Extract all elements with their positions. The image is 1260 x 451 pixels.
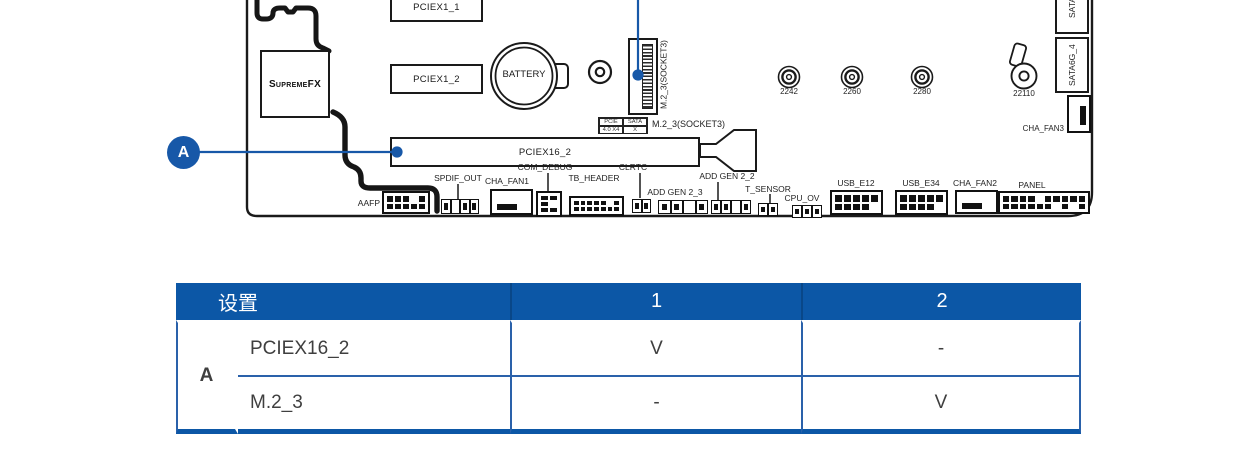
pin (601, 201, 606, 205)
pin (909, 195, 916, 202)
pin (1020, 204, 1026, 210)
com-debug-header (536, 191, 562, 217)
pin (871, 195, 878, 202)
tb-header-label: TB_HEADER (563, 173, 625, 183)
pin (927, 195, 934, 202)
pin (403, 204, 409, 210)
pin (594, 201, 599, 205)
pin-grid (574, 201, 619, 211)
pin (844, 204, 851, 211)
row-pciex16-2-col1: V (510, 320, 801, 375)
pin-grid (835, 195, 878, 210)
pin (1045, 204, 1051, 210)
m2-mode-sata: SATA (623, 118, 647, 126)
pin (581, 201, 586, 205)
pin (1053, 204, 1059, 210)
cha-fan1-label: CHA_FAN1 (478, 176, 536, 186)
standoff-2260 (842, 67, 863, 88)
slot-pciex16-2-label: PCIEX16_2 (519, 147, 571, 158)
pin-grid (387, 196, 425, 209)
pin (1037, 204, 1043, 210)
cpu-ov-header (792, 205, 822, 218)
pin-grid (441, 199, 479, 214)
pin (387, 196, 393, 202)
pin (1072, 108, 1080, 113)
cha-fan2-label: CHA_FAN2 (944, 178, 1006, 188)
pin (1062, 204, 1068, 210)
settings-table: 设置 1 2 A PCIEX16_2 V - M.2_3 - V (176, 283, 1081, 434)
pin (711, 200, 721, 214)
sata-port-sata6g-4-label: SATA6G_4 (1067, 39, 1077, 91)
aafp-label: AAFP (346, 198, 380, 208)
standoff-2242-label: 2242 (767, 87, 811, 96)
cha-fan3-latch (1080, 106, 1086, 125)
slot-pciex1-1-label: PCIEX1_1 (413, 2, 460, 13)
panel-header (998, 191, 1090, 214)
battery-label: BATTERY (489, 69, 559, 80)
callout-a-badge: A (167, 136, 200, 169)
pin (581, 207, 586, 211)
add-gen-2-3-header (658, 200, 708, 214)
pin (632, 199, 642, 213)
com-debug-label: COM_DEBUG (510, 162, 580, 172)
clrtc-header (632, 199, 651, 213)
cha-fan1-latch (497, 204, 517, 210)
column-1-header: 1 (510, 283, 801, 320)
pin (1079, 196, 1085, 202)
pin (768, 203, 778, 216)
pin (608, 201, 613, 205)
pin-grid (658, 200, 708, 214)
pin (601, 207, 606, 211)
clrtc-label: CLRTC (614, 162, 652, 172)
pin (936, 195, 943, 202)
row-m2-3-col2: V (801, 375, 1081, 434)
column-2-header: 2 (801, 283, 1081, 320)
settings-header-cell: 设置 (176, 283, 510, 320)
pin (1011, 204, 1017, 210)
pin-grid (792, 205, 822, 218)
pin (1072, 101, 1080, 106)
standoff-2280-label: 2280 (900, 87, 944, 96)
pin (900, 204, 907, 211)
pin (574, 207, 579, 211)
pin (1079, 204, 1085, 210)
pin-grid (1072, 101, 1080, 127)
pin (1037, 196, 1043, 202)
m2-mode-pcie-value: 4.0 X4 (599, 126, 623, 134)
pin (451, 199, 461, 214)
standoff-2260-label: 2260 (830, 87, 874, 96)
aafp-header (382, 191, 430, 214)
pin-grid (632, 199, 651, 213)
pin (671, 200, 684, 214)
pin (513, 195, 518, 203)
pin (614, 201, 619, 205)
pin (550, 196, 557, 200)
pin (541, 196, 548, 200)
pin (520, 195, 525, 203)
pin (574, 201, 579, 205)
row-m2-3-name: M.2_3 (238, 375, 510, 434)
group-a-cell: A (176, 320, 238, 434)
pin (419, 204, 425, 210)
pin (498, 195, 503, 203)
pin (970, 196, 975, 204)
pin (918, 204, 925, 211)
pin-grid (498, 195, 525, 203)
pin (1053, 196, 1059, 202)
pin (835, 195, 842, 202)
pin (587, 207, 592, 211)
settings-table-header-row: 设置 1 2 (176, 283, 1081, 320)
m2-socket-vertical-label: M.2_3(SOCKET3) (656, 32, 671, 118)
pin-grid (541, 196, 557, 212)
standoff-22110 (1009, 43, 1036, 89)
m2-mode-sata-value: X (623, 126, 647, 134)
pin (395, 204, 401, 210)
pin (721, 200, 731, 214)
pin (1070, 204, 1076, 210)
cha-fan2-header (955, 190, 998, 214)
m2-mode-table: PCIE SATA 4.0 X4 X (598, 117, 648, 134)
pin (978, 196, 983, 204)
pin (871, 204, 878, 211)
usb-e12-header (830, 190, 883, 215)
pin (918, 195, 925, 202)
pcie-slot-latch (700, 130, 756, 171)
pin (1045, 196, 1051, 202)
pin (1003, 204, 1009, 210)
cpu-ov-label: CPU_OV (781, 193, 823, 203)
pin (683, 200, 696, 214)
pin (594, 207, 599, 211)
pin (862, 195, 869, 202)
add-gen-2-3-label: ADD GEN 2_3 (641, 187, 709, 197)
pin (550, 202, 557, 206)
pin (1028, 196, 1034, 202)
pin (1072, 115, 1080, 120)
pin (1028, 204, 1034, 210)
pin (741, 200, 751, 214)
pin (853, 204, 860, 211)
supremefx-chip: SupremeFX (260, 50, 330, 118)
audio-shield-line-top (257, 0, 329, 51)
pin (862, 204, 869, 211)
pin (541, 208, 548, 212)
pin (395, 196, 401, 202)
pin (470, 199, 480, 214)
cha-fan3-label: CHA_FAN3 (1000, 124, 1064, 133)
supremefx-logo: SupremeFX (269, 79, 321, 90)
pin (909, 204, 916, 211)
pin (1070, 196, 1076, 202)
pin (853, 195, 860, 202)
pin (792, 205, 802, 218)
pin (1003, 196, 1009, 202)
pin (411, 204, 417, 210)
panel-label: PANEL (1012, 180, 1052, 190)
sata-port-top-label: SATA6G (1067, 0, 1077, 32)
pin (419, 196, 425, 202)
sata-port-top: SATA6G (1055, 0, 1089, 34)
slot-pciex1-2: PCIEX1_2 (390, 64, 483, 94)
pin (403, 196, 409, 202)
m2-mode-pcie: PCIE (599, 118, 623, 126)
pin-grid (758, 203, 778, 216)
m2-socket-horizontal-label: M.2_3(SOCKET3) (652, 119, 725, 129)
usb-e34-header (895, 190, 948, 215)
pin-grid (1003, 196, 1085, 209)
usb-e12-label: USB_E12 (824, 178, 888, 188)
t-sensor-header (758, 203, 778, 216)
slot-pciex1-2-label: PCIEX1_2 (413, 74, 460, 85)
pin (835, 204, 842, 211)
pin (927, 204, 934, 211)
pin (658, 200, 671, 214)
pin (985, 196, 990, 204)
pin-grid (711, 200, 751, 214)
pin (460, 199, 470, 214)
table-row: M.2_3 - V (176, 375, 1081, 434)
screw-hole-inner (596, 68, 604, 76)
pin (1011, 196, 1017, 202)
pin (505, 195, 510, 203)
spdif-out-header (441, 199, 479, 214)
add-gen-2-2-label: ADD GEN 2_2 (694, 171, 760, 181)
pin (758, 203, 768, 216)
cha-fan1-header (490, 189, 533, 215)
m2-socket (628, 38, 658, 115)
standoff-2242 (779, 67, 800, 88)
table-row: A PCIEX16_2 V - (176, 320, 1081, 375)
pin (936, 204, 943, 211)
pin (587, 201, 592, 205)
pin (812, 205, 822, 218)
standoff-22110-label: 22110 (1000, 89, 1048, 98)
add-gen-2-2-header (711, 200, 751, 214)
pin (1072, 122, 1080, 127)
pin-grid (900, 195, 943, 210)
pin (696, 200, 709, 214)
pin (387, 204, 393, 210)
row-pciex16-2-col2: - (801, 320, 1081, 375)
slot-pciex1-1: PCIEX1_1 (390, 0, 483, 22)
pin (608, 207, 613, 211)
pin (1020, 196, 1026, 202)
pin (1062, 196, 1068, 202)
pin (900, 195, 907, 202)
pin (642, 199, 652, 213)
pin-grid (963, 196, 990, 204)
pin (411, 196, 417, 202)
pin (963, 196, 968, 204)
sata-port-sata6g-4: SATA6G_4 (1055, 37, 1089, 93)
row-pciex16-2-name: PCIEX16_2 (238, 320, 510, 375)
pin (441, 199, 451, 214)
manual-page: PCIEX1_1 PCIEX1_2 PCIEX16_2 SupremeFX BA… (0, 0, 1260, 451)
standoff-2280 (912, 67, 933, 88)
row-m2-3-col1: - (510, 375, 801, 434)
cha-fan3-header (1067, 95, 1091, 133)
pin (731, 200, 741, 214)
pin (614, 207, 619, 211)
pin (541, 202, 548, 206)
pin (802, 205, 812, 218)
pin (550, 208, 557, 212)
tb-header (569, 196, 624, 216)
m2-socket-pins (642, 44, 653, 109)
pin (844, 195, 851, 202)
